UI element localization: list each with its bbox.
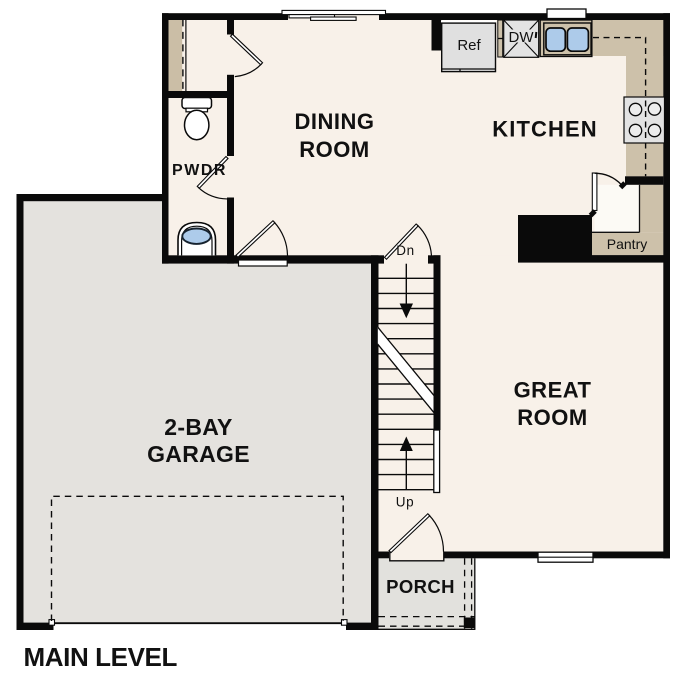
svg-text:GARAGE: GARAGE <box>147 441 250 467</box>
svg-text:Pantry: Pantry <box>607 236 647 252</box>
svg-text:ROOM: ROOM <box>517 405 587 430</box>
svg-text:ROOM: ROOM <box>299 137 369 162</box>
svg-text:DINING: DINING <box>295 109 375 134</box>
svg-text:MAIN LEVEL: MAIN LEVEL <box>24 642 178 672</box>
svg-text:PORCH: PORCH <box>386 576 455 597</box>
svg-text:2-BAY: 2-BAY <box>164 414 232 440</box>
svg-text:PWDR: PWDR <box>172 162 227 179</box>
svg-text:Up: Up <box>396 495 414 510</box>
svg-text:DW: DW <box>509 29 535 46</box>
svg-text:Ref: Ref <box>457 37 481 54</box>
svg-text:Dn: Dn <box>396 243 414 258</box>
svg-text:GREAT: GREAT <box>514 378 592 403</box>
svg-text:KITCHEN: KITCHEN <box>492 117 597 142</box>
